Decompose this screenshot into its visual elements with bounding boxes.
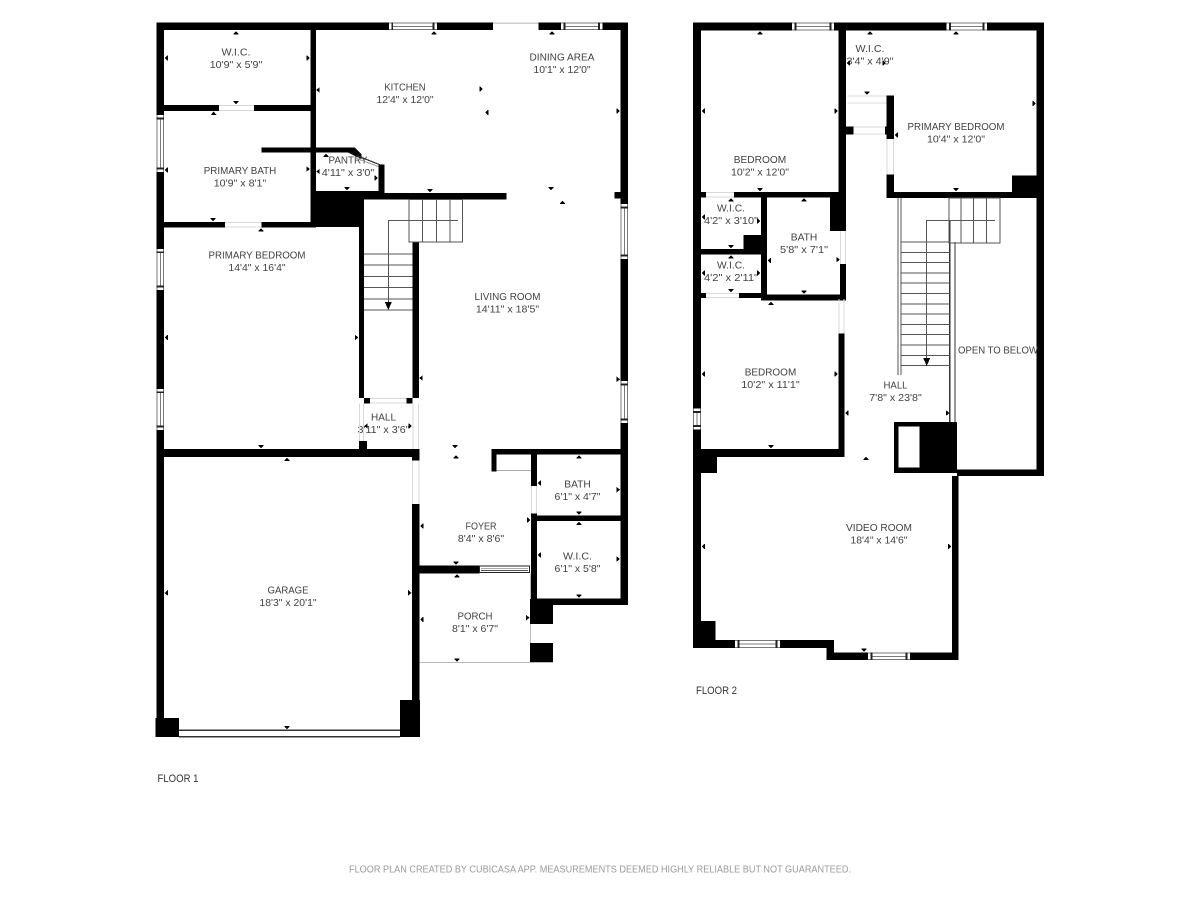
- svg-text:8'1" x 6'7": 8'1" x 6'7": [452, 623, 498, 635]
- svg-text:DINING AREA: DINING AREA: [530, 52, 595, 64]
- svg-text:7'8" x 23'8": 7'8" x 23'8": [869, 392, 922, 404]
- svg-text:12'4" x 12'0": 12'4" x 12'0": [376, 94, 433, 106]
- svg-text:8'4" x 8'6": 8'4" x 8'6": [458, 533, 505, 545]
- svg-text:VIDEO ROOM: VIDEO ROOM: [846, 522, 912, 534]
- svg-text:HALL: HALL: [371, 412, 396, 424]
- svg-text:FLOOR 1: FLOOR 1: [158, 773, 199, 785]
- svg-text:W.I.C.: W.I.C.: [856, 43, 885, 55]
- svg-text:FLOOR 2: FLOOR 2: [696, 685, 737, 697]
- svg-text:GARAGE: GARAGE: [268, 585, 309, 597]
- svg-text:W.I.C.: W.I.C.: [717, 260, 745, 272]
- svg-text:PRIMARY BEDROOM: PRIMARY BEDROOM: [908, 121, 1005, 133]
- svg-text:LIVING ROOM: LIVING ROOM: [475, 291, 541, 303]
- svg-text:KITCHEN: KITCHEN: [384, 82, 425, 94]
- svg-text:6'1" x 4'7": 6'1" x 4'7": [555, 491, 601, 503]
- svg-text:10'2" x 12'0": 10'2" x 12'0": [731, 167, 789, 179]
- svg-text:3'4" x 4'9": 3'4" x 4'9": [847, 56, 894, 68]
- svg-text:4'2" x 3'10": 4'2" x 3'10": [704, 215, 758, 227]
- svg-text:OPEN TO BELOW: OPEN TO BELOW: [958, 345, 1038, 357]
- svg-text:10'1" x 12'0": 10'1" x 12'0": [533, 64, 590, 76]
- svg-text:4'2" x 2'11": 4'2" x 2'11": [704, 272, 758, 284]
- svg-text:14'4" x 16'4": 14'4" x 16'4": [228, 262, 285, 274]
- svg-text:10'4" x 12'0": 10'4" x 12'0": [927, 134, 985, 146]
- svg-text:10'9" x 8'1": 10'9" x 8'1": [214, 178, 267, 190]
- svg-text:BEDROOM: BEDROOM: [734, 154, 787, 166]
- svg-text:FOYER: FOYER: [466, 521, 497, 533]
- svg-text:BATH: BATH: [791, 232, 818, 244]
- svg-text:BATH: BATH: [564, 479, 591, 491]
- svg-text:FLOOR PLAN CREATED BY CUBICASA: FLOOR PLAN CREATED BY CUBICASA APP. MEAS…: [349, 865, 851, 876]
- svg-text:6'1" x 5'8": 6'1" x 5'8": [555, 563, 601, 575]
- svg-text:PRIMARY BEDROOM: PRIMARY BEDROOM: [209, 250, 306, 262]
- svg-text:14'11" x 18'5": 14'11" x 18'5": [476, 304, 540, 316]
- svg-text:W.I.C.: W.I.C.: [222, 47, 251, 59]
- svg-text:18'4" x 14'6": 18'4" x 14'6": [851, 535, 908, 547]
- svg-text:4'11" x 3'0": 4'11" x 3'0": [322, 167, 375, 179]
- svg-text:10'9" x 5'9": 10'9" x 5'9": [210, 59, 263, 71]
- svg-text:BEDROOM: BEDROOM: [745, 367, 797, 379]
- svg-text:PORCH: PORCH: [458, 611, 493, 623]
- svg-text:5'8" x 7'1": 5'8" x 7'1": [780, 244, 828, 256]
- svg-text:10'2" x 11'1": 10'2" x 11'1": [741, 379, 800, 391]
- svg-text:W.I.C.: W.I.C.: [717, 203, 745, 215]
- svg-text:HALL: HALL: [884, 380, 908, 392]
- svg-text:PRIMARY BATH: PRIMARY BATH: [204, 165, 277, 177]
- svg-text:W.I.C.: W.I.C.: [563, 551, 592, 563]
- svg-text:18'3" x 20'1": 18'3" x 20'1": [259, 597, 316, 609]
